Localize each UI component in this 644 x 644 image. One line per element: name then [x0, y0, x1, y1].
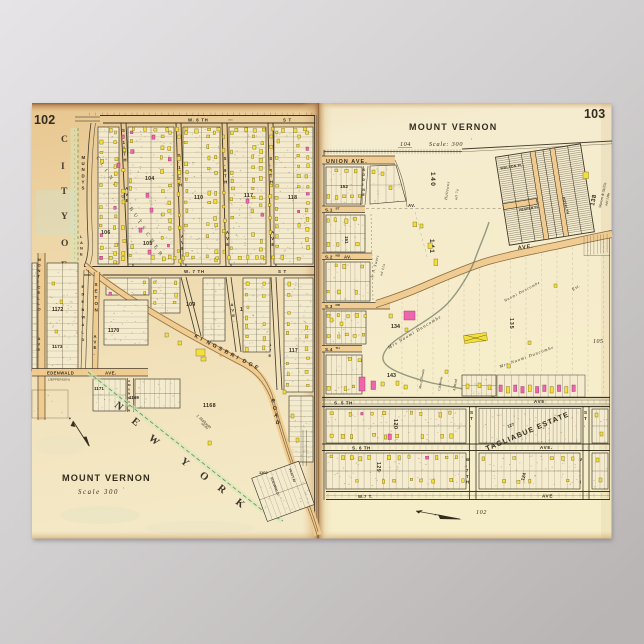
- svg-text:E: E: [363, 193, 365, 197]
- svg-text:V: V: [94, 340, 97, 345]
- svg-text:E: E: [38, 347, 41, 352]
- svg-text:EDENWALD: EDENWALD: [47, 370, 74, 375]
- svg-text:118: 118: [288, 195, 297, 201]
- svg-text:W. 6 TH: W. 6 TH: [188, 117, 208, 122]
- svg-text:S T: S T: [278, 269, 287, 274]
- svg-text:N: N: [80, 246, 83, 251]
- svg-text:A: A: [82, 323, 85, 327]
- svg-text:1168: 1168: [203, 403, 216, 409]
- svg-text:D: D: [82, 338, 85, 342]
- svg-text:143: 143: [387, 373, 396, 379]
- svg-text:N: N: [128, 408, 130, 412]
- svg-text:AV.: AV.: [408, 203, 416, 208]
- svg-text:C: C: [38, 285, 41, 290]
- svg-text:152: 152: [340, 184, 348, 190]
- svg-text:.: .: [224, 162, 225, 167]
- svg-text:N: N: [82, 308, 85, 312]
- svg-text:V: V: [231, 307, 234, 312]
- svg-text:E: E: [95, 288, 98, 293]
- svg-text:1170: 1170: [108, 328, 119, 334]
- svg-text:Scale 300: Scale 300: [78, 489, 119, 496]
- svg-text:S: S: [224, 156, 227, 161]
- svg-text:1172: 1172: [52, 307, 63, 313]
- svg-text:T: T: [270, 174, 273, 179]
- svg-text:MOUNT VERNON: MOUNT VERNON: [409, 122, 497, 132]
- svg-text:.: .: [270, 162, 271, 167]
- svg-text:AVE: AVE: [542, 494, 553, 499]
- svg-text:.: .: [584, 422, 585, 427]
- svg-text:E: E: [269, 353, 272, 358]
- svg-text:S: S: [584, 410, 587, 415]
- svg-text:S: S: [122, 128, 125, 133]
- svg-text:105: 105: [143, 241, 153, 247]
- svg-text:O: O: [95, 301, 99, 306]
- svg-text:S. 5 TH: S. 5 TH: [334, 401, 353, 406]
- svg-text:C: C: [61, 135, 68, 145]
- svg-text:(JEFFERSON): (JEFFERSON): [48, 378, 70, 382]
- svg-text:T: T: [584, 416, 587, 421]
- svg-text:104: 104: [145, 176, 155, 182]
- svg-text:H: H: [466, 479, 469, 484]
- svg-text:140: 140: [429, 172, 436, 187]
- svg-text:1102: 1102: [259, 470, 268, 475]
- svg-text:✶: ✶: [68, 416, 72, 421]
- svg-text:E: E: [38, 290, 41, 295]
- svg-text:102: 102: [476, 509, 487, 516]
- svg-text:N: N: [38, 268, 41, 273]
- svg-text:.: .: [94, 351, 95, 356]
- svg-text:T: T: [95, 295, 98, 300]
- svg-text:ST: ST: [336, 207, 340, 211]
- svg-text:U: U: [82, 161, 85, 166]
- svg-text:V: V: [38, 342, 41, 347]
- svg-text:UNION AVE.: UNION AVE.: [326, 159, 368, 165]
- svg-text:.: .: [38, 353, 39, 358]
- svg-text:105: 105: [593, 339, 604, 345]
- svg-text:129: 129: [375, 462, 381, 472]
- svg-text:1169: 1169: [129, 395, 139, 400]
- svg-text:S.1: S.1: [325, 208, 333, 213]
- svg-text:S: S: [269, 156, 272, 161]
- svg-text:T: T: [61, 187, 68, 197]
- svg-text:A: A: [226, 230, 229, 235]
- svg-text:ND: ND: [336, 254, 341, 258]
- svg-text:1173: 1173: [52, 344, 63, 350]
- svg-text:T: T: [470, 416, 473, 421]
- svg-text:': ': [123, 488, 124, 493]
- svg-text:135: 135: [508, 318, 514, 330]
- svg-text:MOUNT VERNON: MOUNT VERNON: [62, 473, 151, 483]
- svg-text:E: E: [94, 345, 97, 350]
- svg-text:M: M: [82, 155, 86, 160]
- svg-text:O: O: [61, 239, 68, 249]
- svg-text:H: H: [224, 180, 227, 185]
- svg-text:S.2: S.2: [325, 255, 333, 260]
- svg-text:S: S: [470, 410, 473, 415]
- svg-text:S: S: [82, 186, 85, 191]
- svg-text:S.4: S.4: [325, 347, 333, 352]
- svg-text:102: 102: [34, 113, 55, 127]
- svg-text:AV.: AV.: [344, 255, 351, 260]
- svg-text:703: 703: [228, 118, 233, 122]
- svg-text:.: .: [470, 422, 471, 427]
- svg-text:.: .: [233, 318, 234, 323]
- svg-text:110: 110: [194, 195, 203, 201]
- svg-text:✶: ✶: [434, 513, 437, 517]
- svg-text:H: H: [123, 158, 126, 163]
- svg-text:120: 120: [392, 419, 398, 430]
- svg-text:A: A: [125, 186, 128, 191]
- svg-text:O: O: [38, 307, 41, 312]
- svg-text:AVE: AVE: [534, 399, 545, 404]
- svg-text:D: D: [82, 293, 85, 297]
- svg-text:A: A: [38, 336, 41, 341]
- svg-text:S. 6 TH: S. 6 TH: [352, 446, 371, 451]
- svg-text:A: A: [231, 302, 234, 307]
- svg-text:151: 151: [344, 236, 349, 244]
- svg-text:N: N: [82, 167, 85, 172]
- svg-text:E: E: [80, 251, 83, 256]
- svg-text:': ': [471, 139, 472, 144]
- svg-text:I: I: [61, 162, 65, 172]
- svg-text:T: T: [123, 152, 126, 157]
- svg-text:H: H: [179, 183, 182, 188]
- svg-text:E: E: [232, 313, 235, 318]
- svg-text:S.3: S.3: [325, 304, 333, 309]
- svg-text:V: V: [226, 236, 229, 241]
- svg-text:A: A: [80, 240, 83, 245]
- svg-text:T: T: [224, 174, 227, 179]
- svg-text:Scale: 300: Scale: 300: [429, 141, 463, 148]
- svg-text:AVE.: AVE.: [540, 445, 553, 450]
- svg-text:103: 103: [584, 107, 605, 121]
- svg-text:W: W: [82, 315, 86, 319]
- svg-text:W.7 T.: W.7 T.: [358, 494, 373, 499]
- svg-text:117: 117: [289, 348, 298, 354]
- svg-text:104: 104: [400, 141, 411, 148]
- svg-text:Y: Y: [61, 212, 68, 222]
- svg-text:AVE.: AVE.: [105, 370, 117, 375]
- svg-text:I: I: [363, 183, 364, 187]
- svg-text:H: H: [270, 180, 273, 185]
- svg-text:S: S: [95, 282, 98, 287]
- svg-text:W. 7 TH: W. 7 TH: [184, 269, 205, 274]
- svg-text:134: 134: [391, 324, 400, 330]
- svg-text:109: 109: [186, 302, 196, 308]
- svg-text:117: 117: [244, 193, 253, 199]
- svg-text:S T: S T: [283, 117, 292, 122]
- svg-text:I: I: [38, 279, 39, 284]
- svg-text:A: A: [94, 334, 97, 339]
- svg-text:T: T: [466, 474, 469, 479]
- svg-text:O: O: [38, 263, 41, 268]
- svg-text:D: D: [82, 173, 85, 178]
- svg-text:RD: RD: [336, 303, 341, 307]
- svg-text:Y: Y: [82, 179, 85, 184]
- svg-text:W: W: [466, 457, 470, 462]
